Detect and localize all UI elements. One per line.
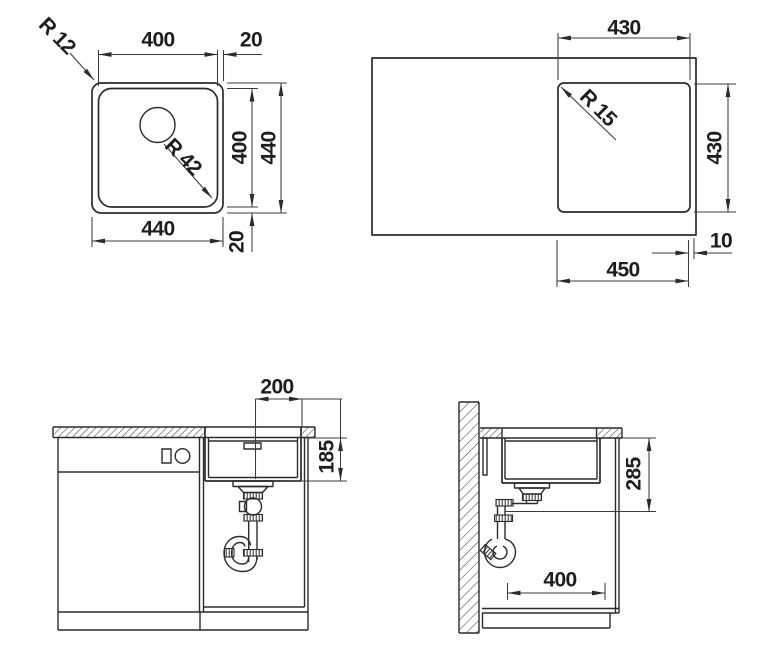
drain-assembly-side [480, 483, 549, 568]
figure-cutout-view: 430 R 15 430 10 450 [372, 17, 736, 288]
technical-drawing-canvas: 400 20 400 440 440 20 R 12 R 42 [0, 0, 782, 656]
cutout-dimension-labels: 430 R 15 430 10 450 [575, 17, 732, 282]
dim-label-edge-gap: 10 [710, 230, 732, 253]
dim-label-bowl-width: 400 [141, 29, 174, 52]
mounting-rail [483, 438, 487, 475]
front-dimension-labels: 200 185 [260, 376, 338, 474]
radius-label-cutout: R 15 [575, 85, 622, 132]
radius-label-corner: R 12 [34, 13, 80, 59]
dim-label-cutout-width: 430 [607, 17, 640, 40]
dim-label-bowl-depth: 185 [316, 439, 339, 473]
radius-label-bowl: R 42 [160, 134, 206, 180]
sink-outline-plan [92, 83, 223, 213]
worktop-front [53, 427, 315, 438]
dim-label-drain-offset: 200 [260, 376, 293, 399]
dim-label-bowl-height: 400 [229, 131, 252, 164]
pipe-nut [244, 515, 263, 522]
dim-label-cabinet-depth: 400 [543, 569, 576, 592]
appliance-control-knob [175, 449, 190, 464]
worktop-side [480, 428, 622, 438]
overflow-slot [244, 443, 261, 449]
wall-outlet-nut [480, 544, 496, 559]
pipe-nut [244, 550, 263, 557]
dim-label-drain-height: 285 [623, 456, 646, 490]
sink-rim-outline [92, 83, 223, 213]
trap-nut [225, 549, 235, 558]
worktop-panel [372, 58, 696, 235]
drain-hole [140, 108, 175, 143]
figure-front-section: 200 185 [53, 376, 347, 631]
pipe-nut [495, 515, 513, 522]
appliance-control-switch [162, 449, 171, 463]
dim-label-outer-width: 440 [141, 218, 174, 241]
elbow-nut [496, 500, 513, 507]
cabinet-front [58, 438, 308, 631]
dim-label-sink-width: 450 [606, 259, 639, 282]
figure-side-section: 285 400 [459, 402, 656, 633]
dim-label-rim-bottom: 20 [226, 231, 249, 253]
sink-bowl-side [483, 438, 600, 483]
wall-section [459, 402, 479, 633]
figure-plan-view: 400 20 400 440 440 20 R 12 R 42 [34, 13, 287, 253]
drain-assembly-front [224, 481, 273, 572]
dim-label-rim-top: 20 [240, 29, 262, 52]
sink-bowl-front [205, 428, 301, 482]
side-dimension-labels: 285 400 [543, 456, 645, 591]
dim-label-cutout-height: 430 [704, 131, 727, 164]
bowl-outline [99, 89, 218, 208]
worktop-outline [372, 58, 696, 235]
drain-nut [523, 494, 542, 501]
plan-dimension-labels: 400 20 400 440 440 20 R 12 R 42 [34, 13, 280, 253]
technical-drawing-page: 400 20 400 440 440 20 R 12 R 42 [0, 0, 782, 656]
dim-label-outer-height: 440 [258, 131, 281, 164]
